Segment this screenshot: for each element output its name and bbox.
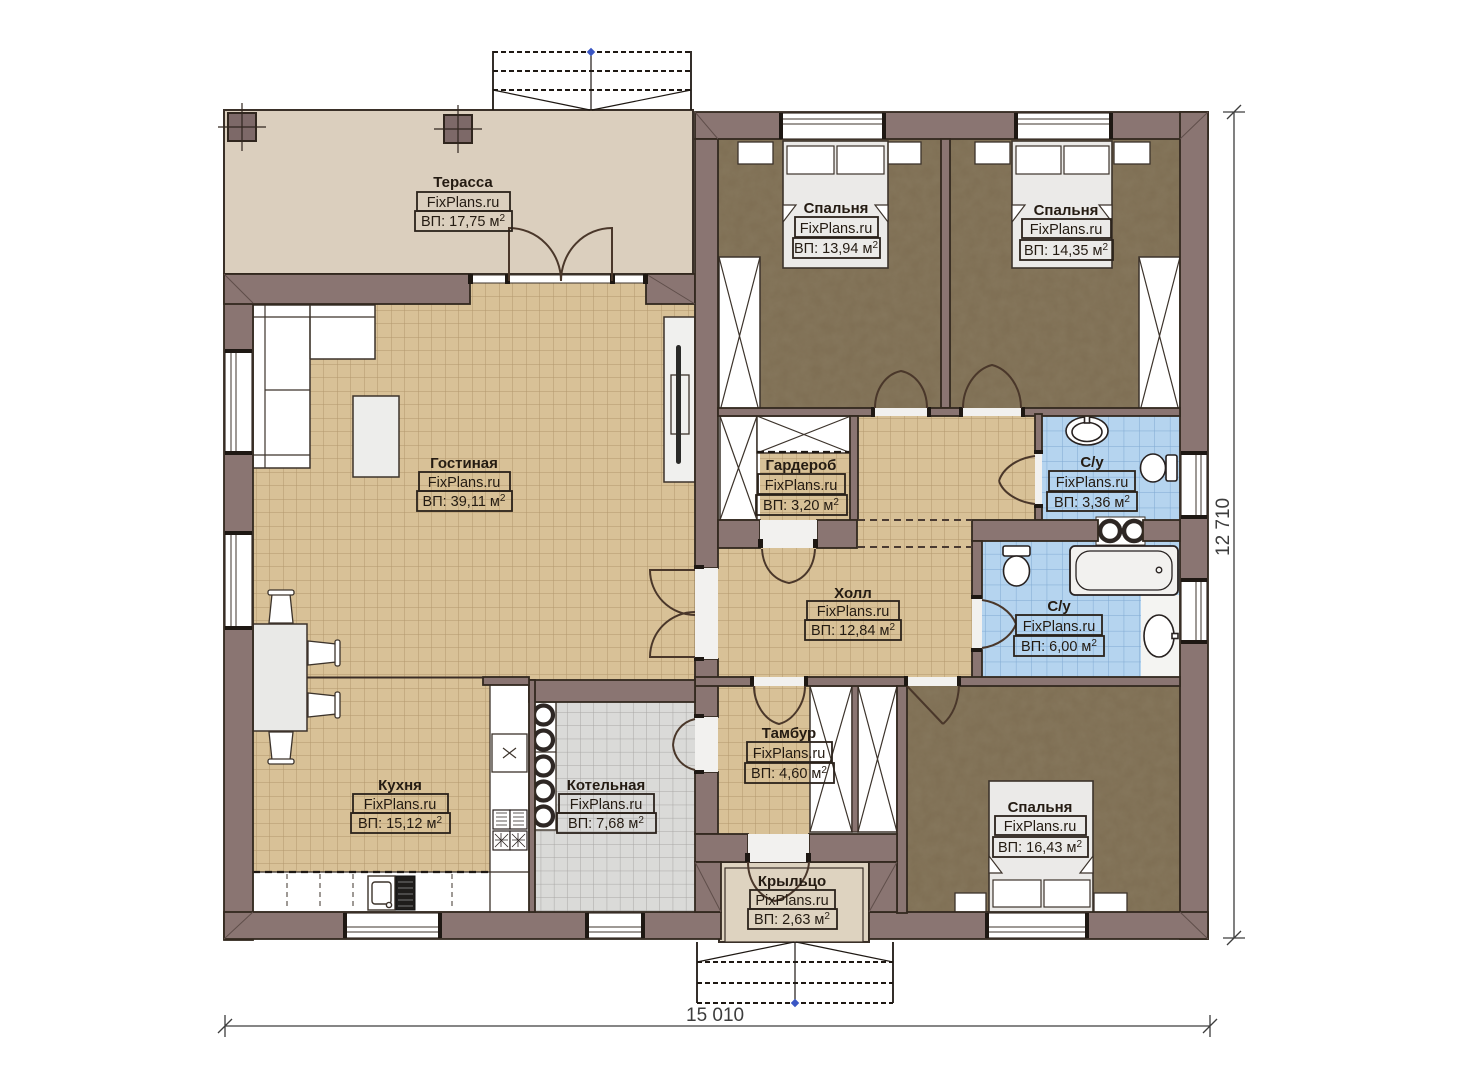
svg-text:ВП: 3,36 м2: ВП: 3,36 м2 xyxy=(1054,494,1130,511)
svg-text:ВП: 14,35 м2: ВП: 14,35 м2 xyxy=(1024,242,1108,259)
svg-text:ВП: 12,84 м2: ВП: 12,84 м2 xyxy=(811,622,895,639)
svg-text:FixPlans.ru: FixPlans.ru xyxy=(765,478,838,494)
svg-text:ВП: 17,75 м2: ВП: 17,75 м2 xyxy=(421,213,505,230)
svg-text:С/у: С/у xyxy=(1080,454,1104,471)
svg-text:PixPlans.ru: PixPlans.ru xyxy=(755,893,828,909)
svg-text:FixPlans.ru: FixPlans.ru xyxy=(364,797,437,813)
svg-text:ВП: 13,94 м2: ВП: 13,94 м2 xyxy=(794,240,878,257)
svg-text:FixPlans.ru: FixPlans.ru xyxy=(1023,619,1096,635)
svg-text:Спальня: Спальня xyxy=(804,200,869,217)
svg-text:Терасса: Терасса xyxy=(433,174,493,191)
svg-text:FixPlans.ru: FixPlans.ru xyxy=(1056,475,1129,491)
svg-text:Тамбур: Тамбур xyxy=(762,725,816,742)
svg-text:ВП: 15,12 м2: ВП: 15,12 м2 xyxy=(358,815,442,832)
svg-text:ВП: 2,63 м2: ВП: 2,63 м2 xyxy=(754,911,830,928)
svg-text:ВП: 3,20 м2: ВП: 3,20 м2 xyxy=(763,497,839,514)
svg-text:ВП: 7,68 м2: ВП: 7,68 м2 xyxy=(568,815,644,832)
svg-text:FixPlans.ru: FixPlans.ru xyxy=(570,797,643,813)
svg-text:FixPlans.ru: FixPlans.ru xyxy=(753,746,826,762)
svg-text:С/у: С/у xyxy=(1047,598,1071,615)
svg-text:ВП: 39,11 м2: ВП: 39,11 м2 xyxy=(423,493,506,510)
svg-text:ВП: 6,00 м2: ВП: 6,00 м2 xyxy=(1021,638,1097,655)
svg-text:Кухня: Кухня xyxy=(378,777,422,794)
svg-text:Гардероб: Гардероб xyxy=(766,457,837,474)
svg-text:Холл: Холл xyxy=(834,585,872,602)
svg-text:Гостиная: Гостиная xyxy=(430,455,498,472)
svg-text:12 710: 12 710 xyxy=(1213,498,1234,556)
svg-text:FixPlans.ru: FixPlans.ru xyxy=(800,221,873,237)
svg-text:FixPlans.ru: FixPlans.ru xyxy=(1030,222,1103,238)
svg-text:FixPlans.ru: FixPlans.ru xyxy=(428,475,501,491)
svg-text:Спальня: Спальня xyxy=(1034,202,1099,219)
svg-text:ВП: 16,43 м2: ВП: 16,43 м2 xyxy=(998,839,1082,856)
svg-text:FixPlans.ru: FixPlans.ru xyxy=(817,604,890,620)
svg-text:ВП: 4,60 м2: ВП: 4,60 м2 xyxy=(751,765,827,782)
svg-text:FixPlans.ru: FixPlans.ru xyxy=(427,195,500,211)
svg-text:FixPlans.ru: FixPlans.ru xyxy=(1004,819,1077,835)
svg-text:15 010: 15 010 xyxy=(686,1005,744,1026)
svg-text:Котельная: Котельная xyxy=(567,777,646,794)
svg-text:Крыльцо: Крыльцо xyxy=(758,873,826,890)
svg-text:Спальня: Спальня xyxy=(1008,799,1073,816)
